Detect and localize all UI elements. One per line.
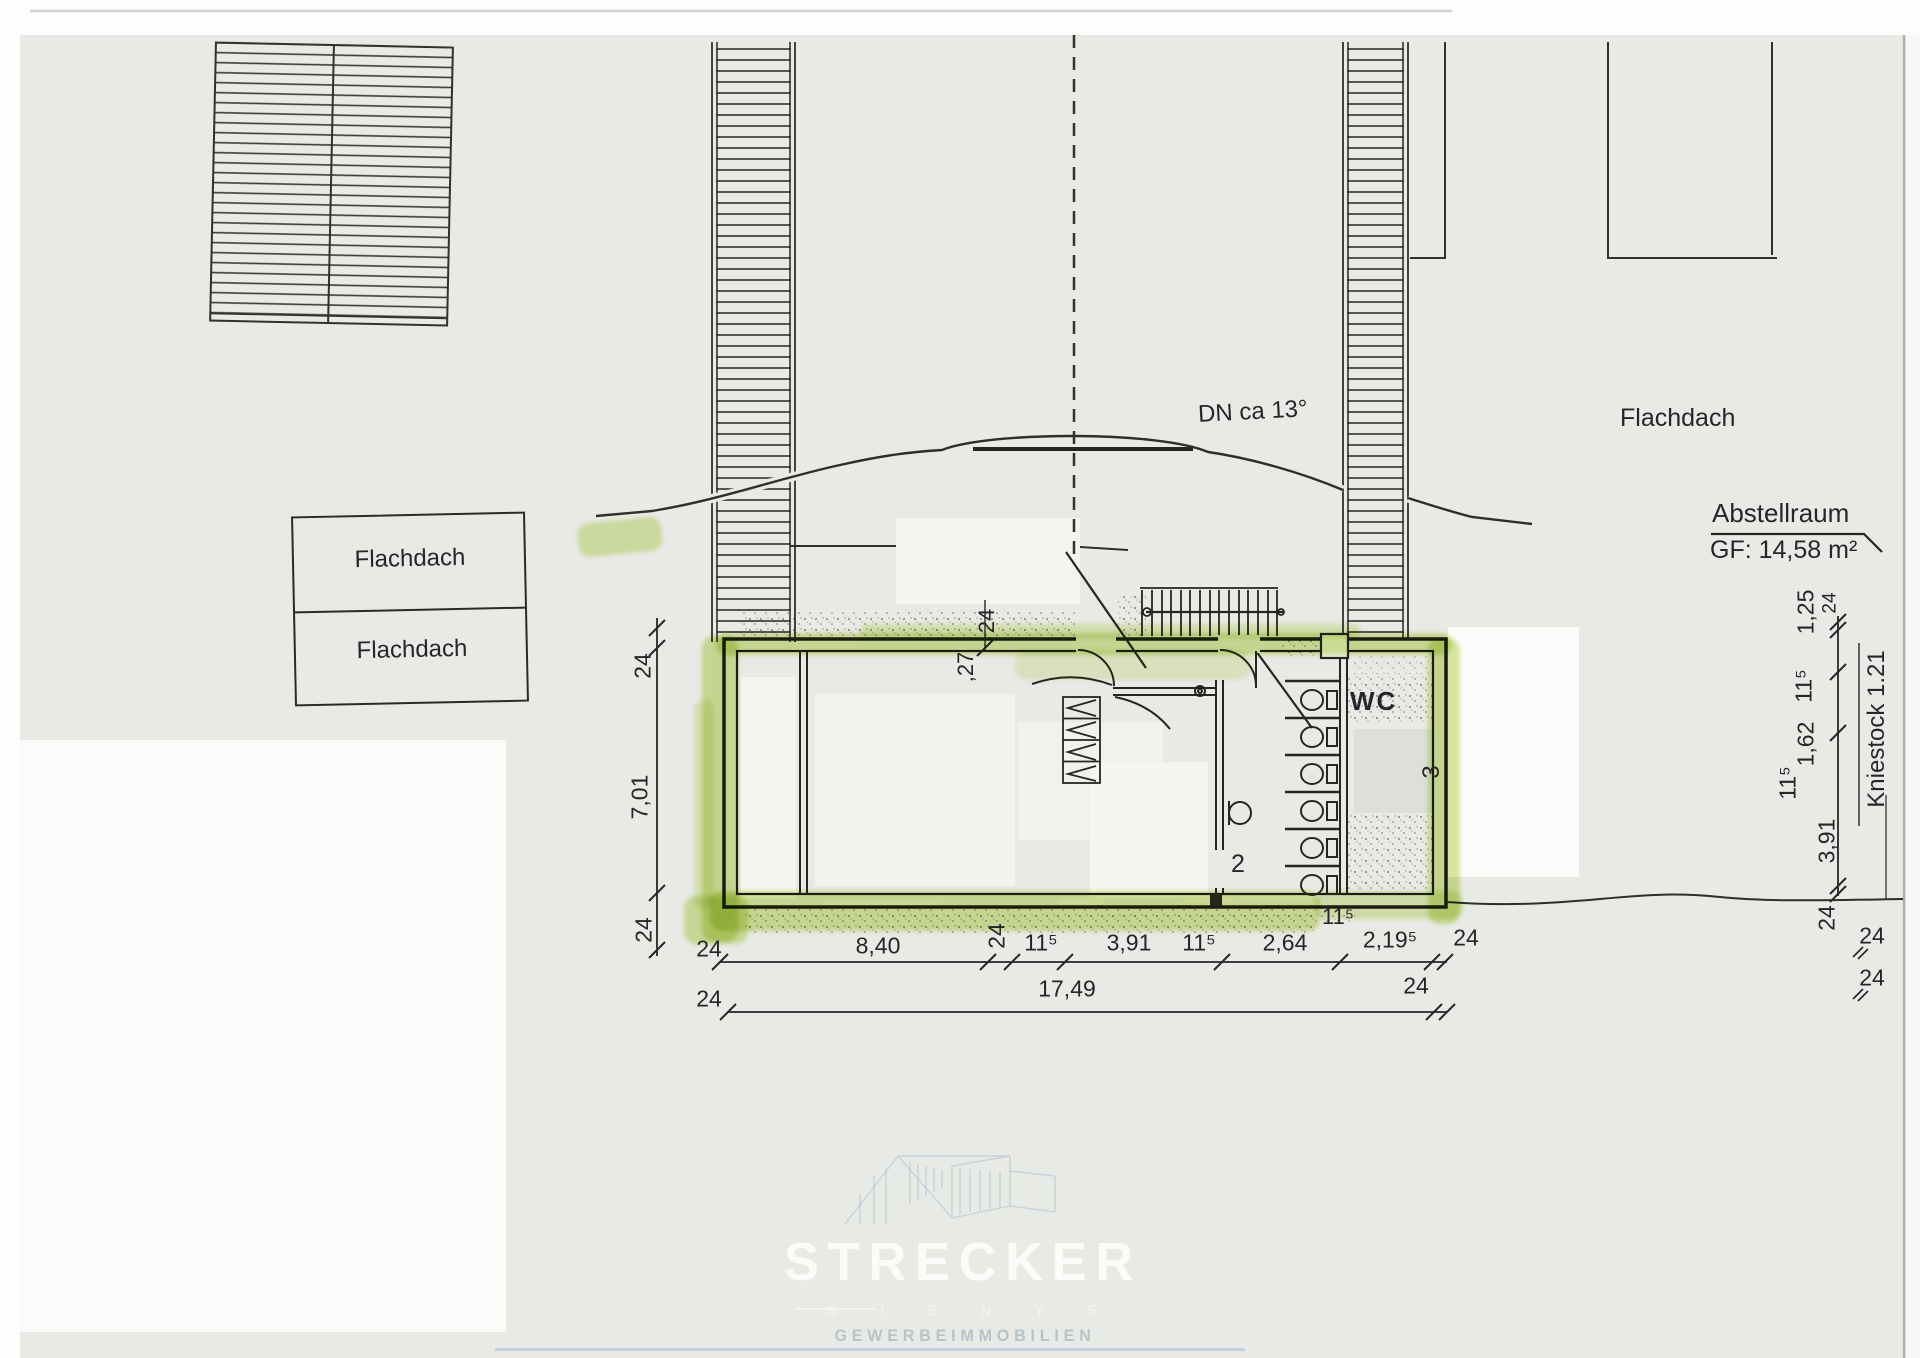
watermark-divider (795, 1308, 875, 1310)
top-wall-doors (1032, 635, 1260, 729)
chimney-strip-left (712, 42, 795, 642)
erased-patch-top-center (896, 518, 1080, 604)
neighbor-building-outlines (1410, 42, 1777, 258)
watermark-bottom-rule (495, 1348, 1245, 1351)
dim-r-0: 1,25 (1795, 590, 1818, 635)
chimney-strip-right (1343, 42, 1408, 640)
dim-r-2: 11⁵ (1793, 669, 1816, 702)
dim-under-wall: 11⁵ (1322, 906, 1354, 928)
kniestock-label: Kniestock 1.21 (1865, 650, 1889, 807)
dim-b1-7: 2,19⁵ (1363, 929, 1417, 952)
roof-pitch-label: DN ca 13° (1197, 397, 1308, 427)
dim-b1-1: 8,40 (856, 935, 901, 958)
dim-left-top: 24 (632, 653, 655, 679)
dim-r-5: 3,91 (1816, 819, 1839, 864)
flachdach-box-label-1: Flachdach (354, 546, 465, 572)
door-number-2: 2 (1231, 852, 1245, 877)
wc-label: WC (1350, 688, 1397, 714)
dim-b1-3: 11⁵ (1024, 932, 1057, 955)
top-wall-pillar (1321, 634, 1348, 658)
dim-r-1: 24 (1821, 592, 1840, 613)
room-number-3: 3 (1420, 765, 1444, 778)
abstellraum-area: GF: 14,58 m² (1710, 538, 1857, 563)
dim-b2-0: 24 (696, 988, 722, 1011)
wc-stalls (1285, 634, 1348, 895)
door-2-sill (1210, 894, 1222, 906)
dim-redge-1: 24 (1859, 967, 1885, 990)
hatched-roof-top-left (210, 43, 453, 326)
dim-b1-8: 24 (1453, 927, 1479, 950)
ground-line (1447, 895, 1903, 905)
scan-left-margin (0, 35, 20, 1358)
scan-right-margin (1906, 35, 1920, 1358)
dim-b1-6: 2,64 (1263, 932, 1308, 955)
dim-left-bottom: 24 (633, 917, 656, 943)
dim-redge-0: 24 (1859, 925, 1885, 948)
flachdach-box-label-2: Flachdach (356, 637, 467, 663)
door-swing-arc-b (1220, 650, 1256, 686)
dim-b1-2: 24 (986, 923, 1009, 949)
dim-b2-1: 17,49 (1038, 978, 1096, 1001)
dim-top-niche: ,27 (955, 652, 977, 683)
erased-patch-left-room (741, 677, 796, 899)
erased-patch-mid-room-a (815, 694, 1015, 886)
erased-patch-right-of-plan (1448, 627, 1579, 877)
abstellraum-title: Abstellraum (1712, 500, 1849, 526)
scan-top-margin (0, 0, 1920, 35)
scanned-floor-plan-page: Flachdach Flachdach DN ca 13° Flachdach … (0, 0, 1920, 1358)
dim-b1-5: 11⁵ (1182, 932, 1215, 955)
flachdach-box (291, 512, 529, 707)
dim-r-3: 1,62 (1795, 722, 1818, 767)
flachdach-right-label: Flachdach (1620, 406, 1735, 431)
dim-r-4: 11⁵ (1777, 766, 1800, 799)
dim-r-6: 24 (1816, 905, 1839, 931)
dim-b1-0: 24 (696, 938, 722, 961)
dim-top-wall: 24 (976, 609, 998, 633)
dim-b1-4: 3,91 (1107, 932, 1152, 955)
dim-left-middle: 7,01 (629, 775, 652, 820)
bottom-wall-windows (826, 896, 1312, 905)
door-swing-arc-wide (1032, 677, 1112, 685)
dim-b2-2: 24 (1403, 975, 1429, 998)
round-fixture (1229, 802, 1251, 824)
erased-patch-bottom-left (20, 740, 506, 1332)
erased-patch-mid-room-c (1090, 762, 1208, 898)
